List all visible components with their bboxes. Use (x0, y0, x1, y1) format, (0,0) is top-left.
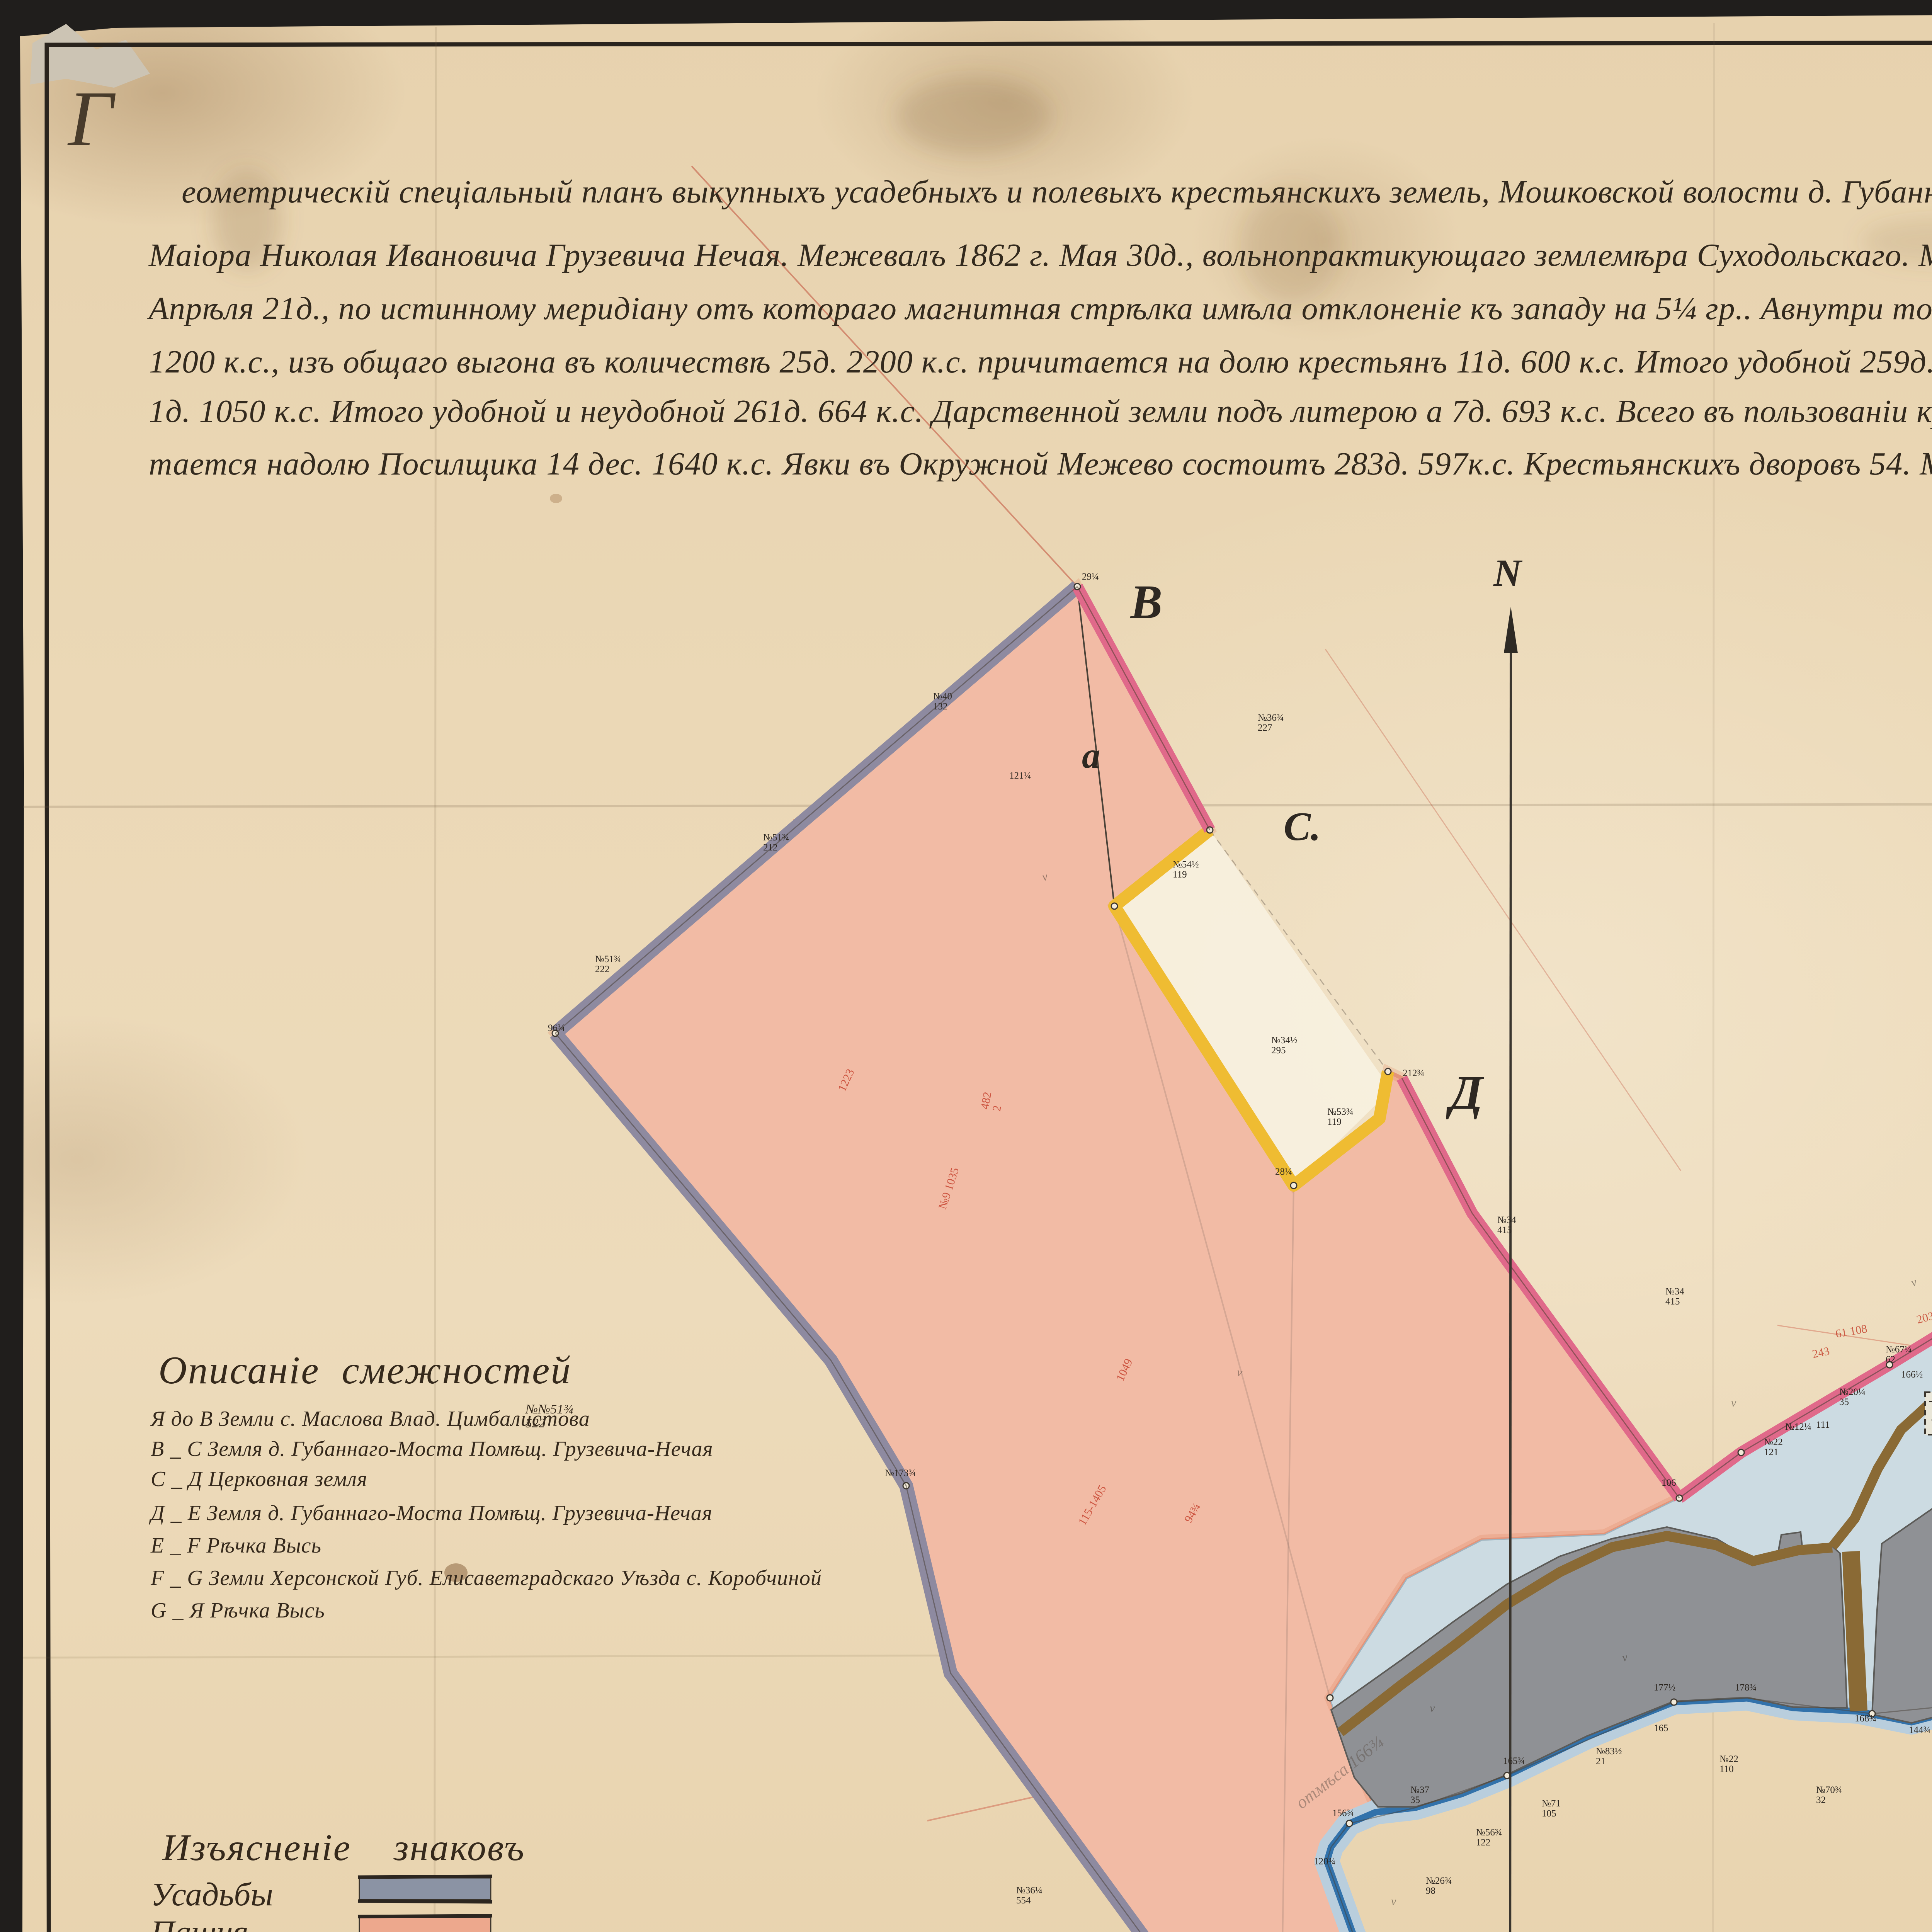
svg-text:v: v (1391, 1895, 1396, 1908)
svg-text:v: v (1430, 1702, 1435, 1714)
svg-text:v: v (1731, 1396, 1736, 1409)
svg-text:v: v (1909, 1276, 1918, 1289)
